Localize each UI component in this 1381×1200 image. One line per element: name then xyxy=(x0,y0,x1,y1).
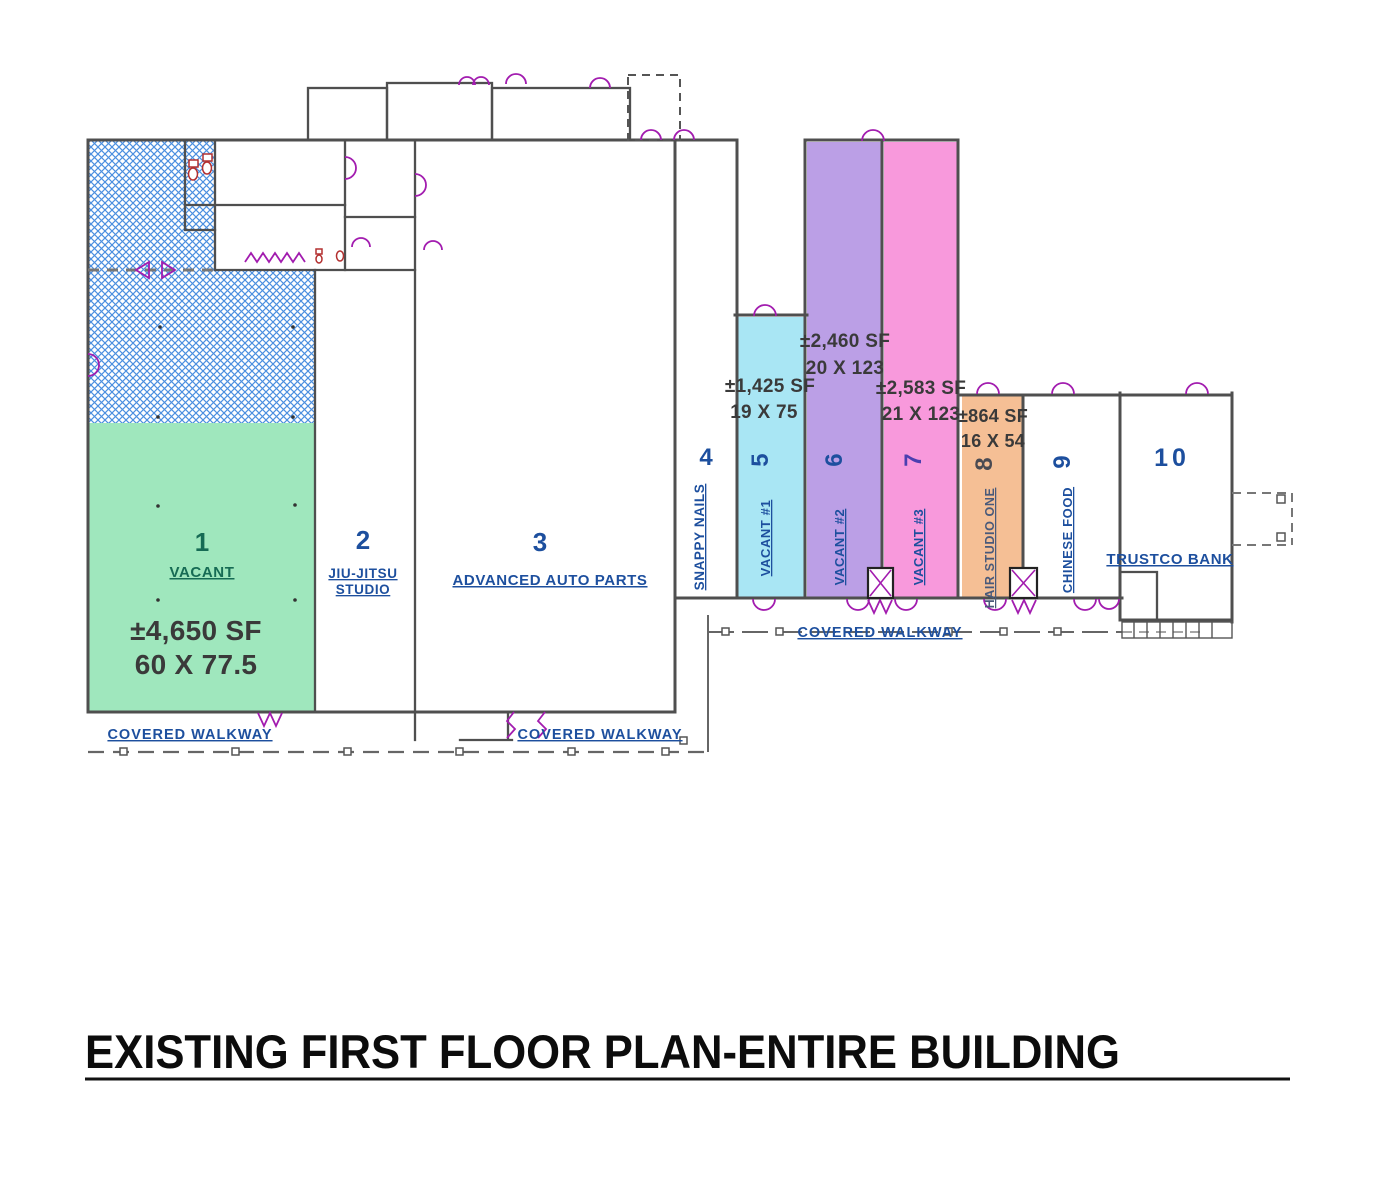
unit-10-number: 10 xyxy=(1154,444,1190,472)
unit-7-name: VACANT #3 xyxy=(911,509,926,586)
covered-walkway-label-middle: COVERED WALKWAY xyxy=(797,625,962,641)
unit-6-name: VACANT #2 xyxy=(832,509,847,586)
canopy-post xyxy=(1277,495,1285,503)
unit-3-number: 3 xyxy=(533,527,547,557)
unit-3-labels: 3 ADVANCED AUTO PARTS xyxy=(452,527,647,589)
unit-2-labels: 2 JIU-JITSU STUDIO xyxy=(328,525,397,597)
unit-5-number: 5 xyxy=(747,453,774,466)
unit-3-name: ADVANCED AUTO PARTS xyxy=(452,572,647,589)
unit-5-dims: 19 X 75 xyxy=(730,402,798,423)
unit-9-name: CHINESE FOOD xyxy=(1060,487,1075,593)
unit-8-name: HAIR STUDIO ONE xyxy=(983,488,997,609)
unit-8-dims: 16 X 54 xyxy=(961,431,1025,451)
hatched-area-lower xyxy=(89,270,315,423)
unit-5-area: ±1,425 SF xyxy=(725,376,815,397)
unit-4-number: 4 xyxy=(699,444,713,471)
unit-9-number: 9 xyxy=(1049,455,1076,468)
drawing-title: EXISTING FIRST FLOOR PLAN-ENTIRE BUILDIN… xyxy=(85,1025,1120,1078)
drive-thru-canopy xyxy=(1232,493,1292,545)
unit-4-name: SNAPPY NAILS xyxy=(692,484,707,591)
unit-7-dims: 21 X 123 xyxy=(882,404,960,425)
floor-plan-page: 1 VACANT ±4,650 SF 60 X 77.5 2 JIU-JITSU… xyxy=(0,0,1381,1200)
unit-1-dims: 60 X 77.5 xyxy=(135,649,258,680)
unit-1-name: VACANT xyxy=(170,564,235,581)
covered-walkway-label-left: COVERED WALKWAY xyxy=(107,727,272,743)
unit-4-labels: 4 SNAPPY NAILS xyxy=(692,444,713,590)
unit-9-labels: 9 CHINESE FOOD xyxy=(1049,455,1076,593)
covered-walkway-label-right: COVERED WALKWAY xyxy=(517,727,682,743)
unit-2-name-line1: JIU-JITSU xyxy=(328,566,397,581)
unit-1-area: ±4,650 SF xyxy=(130,615,262,646)
unit-8-area: ±864 SF xyxy=(958,406,1028,426)
unit-10-labels: 10 TRUSTCO BANK xyxy=(1106,444,1233,568)
unit-7-number: 7 xyxy=(900,453,927,466)
unit-8-number: 8 xyxy=(971,457,998,470)
unit-10-name: TRUSTCO BANK xyxy=(1106,551,1233,568)
floor-plan-drawing: 1 VACANT ±4,650 SF 60 X 77.5 2 JIU-JITSU… xyxy=(0,0,1381,1200)
bank-sidewalk xyxy=(1122,622,1232,638)
unit-6-area: ±2,460 SF xyxy=(800,331,890,352)
unit-6-dims: 20 X 123 xyxy=(806,358,884,379)
unit-2-name-line2: STUDIO xyxy=(336,582,391,597)
unit-5-name: VACANT #1 xyxy=(758,500,773,577)
drawing-title-block: EXISTING FIRST FLOOR PLAN-ENTIRE BUILDIN… xyxy=(85,1025,1290,1079)
unit-1-number: 1 xyxy=(195,527,209,557)
unit-7-area: ±2,583 SF xyxy=(876,378,966,399)
unit-6-number: 6 xyxy=(821,453,848,466)
canopy-post xyxy=(1277,533,1285,541)
unit-2-number: 2 xyxy=(356,525,370,555)
